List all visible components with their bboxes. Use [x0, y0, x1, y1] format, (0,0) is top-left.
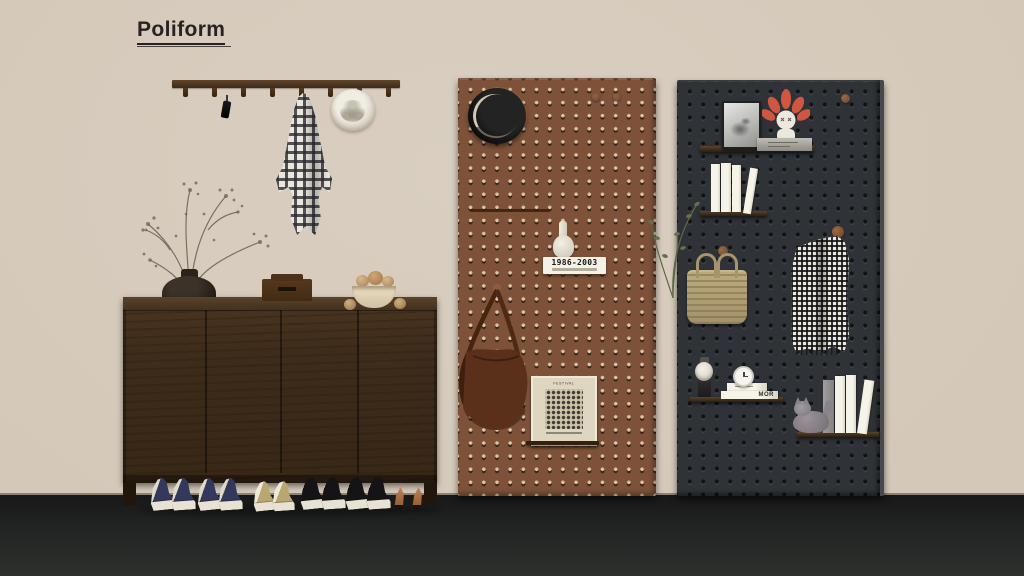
white-figurine: [553, 235, 574, 258]
bread-ball: [368, 271, 383, 285]
plinth-text-line: [768, 142, 798, 143]
keychain: [221, 100, 232, 118]
coat-rack-rail: [172, 80, 400, 88]
sneaker-pair-black: [300, 477, 346, 512]
white-book: [721, 163, 731, 212]
white-book: [711, 164, 720, 212]
tote-handle: [717, 253, 738, 278]
poster-title: FESTIVAL: [543, 382, 585, 386]
poster-artwork: [545, 389, 583, 429]
clock-hand: [743, 376, 748, 378]
rack-peg: [241, 88, 246, 97]
door-seam: [280, 310, 282, 473]
rack-peg: [212, 88, 217, 97]
black-hat: [468, 88, 526, 144]
framed-photo: [722, 101, 761, 149]
showroom-scene: Poliform: [0, 0, 1024, 576]
peg: [832, 226, 844, 238]
sneaker: [343, 476, 370, 510]
wood-sideboard: [123, 297, 437, 483]
framed-poster: FESTIVAL: [531, 376, 597, 446]
logo-underline-rule: [137, 46, 231, 47]
sneaker-pair-navy: [197, 478, 243, 512]
sneaker: [320, 476, 346, 510]
straw-tote-bag: [687, 270, 747, 324]
heel-shoe: [394, 487, 411, 510]
peg: [592, 93, 600, 101]
door-seam: [357, 310, 359, 473]
door-seam: [205, 310, 207, 473]
coat-fringe: [796, 348, 838, 355]
bread-ball: [394, 298, 406, 309]
toy-plinth: [757, 138, 812, 151]
stacked-book: MOR: [721, 391, 778, 399]
panama-hat: [331, 89, 375, 131]
rack-peg: [183, 88, 188, 97]
sneaker: [365, 476, 391, 510]
cat-head: [794, 401, 811, 416]
rack-peg: [386, 88, 391, 97]
white-book: [835, 376, 845, 433]
sneaker: [195, 477, 222, 511]
houndstooth-coat: [791, 236, 849, 352]
peg: [841, 94, 850, 103]
sneaker: [217, 477, 243, 511]
sneaker: [148, 477, 175, 511]
sneaker: [298, 476, 325, 510]
alarm-clock: [733, 366, 754, 387]
plaque-subtext-line: [552, 268, 597, 271]
sneaker-pair-navy: [150, 478, 196, 512]
wooden-box: [262, 279, 312, 301]
plaque-text: 1986-2003: [543, 257, 606, 268]
leather-crossbody-bag: [455, 283, 535, 431]
sideboard-left-leg: [123, 483, 136, 506]
hanging-rod: [470, 209, 550, 212]
sneaker-pair-black: [345, 477, 391, 512]
sneaker: [251, 480, 276, 512]
poliform-logo: Poliform: [137, 18, 225, 45]
poster-shelf: [526, 441, 599, 445]
peg: [613, 93, 621, 101]
sneaker-pair-beige: [252, 480, 294, 512]
sneaker: [271, 481, 295, 512]
photo-image: [724, 103, 759, 147]
figurine-with-hat: [695, 362, 713, 381]
plinth-text-line: [768, 146, 790, 147]
sneaker: [170, 477, 196, 511]
rack-peg: [270, 88, 275, 97]
heel-shoe: [412, 487, 429, 510]
book-spine-text: MOR: [759, 392, 775, 399]
bread-ball: [344, 299, 356, 310]
rack-peg: [328, 88, 333, 97]
white-book: [846, 375, 856, 433]
poster-caption-line: [546, 432, 582, 434]
white-book: [732, 165, 741, 212]
tote-handle: [696, 253, 717, 278]
year-plaque: 1986-2003: [543, 257, 606, 274]
heels-pair-tan: [394, 487, 430, 512]
